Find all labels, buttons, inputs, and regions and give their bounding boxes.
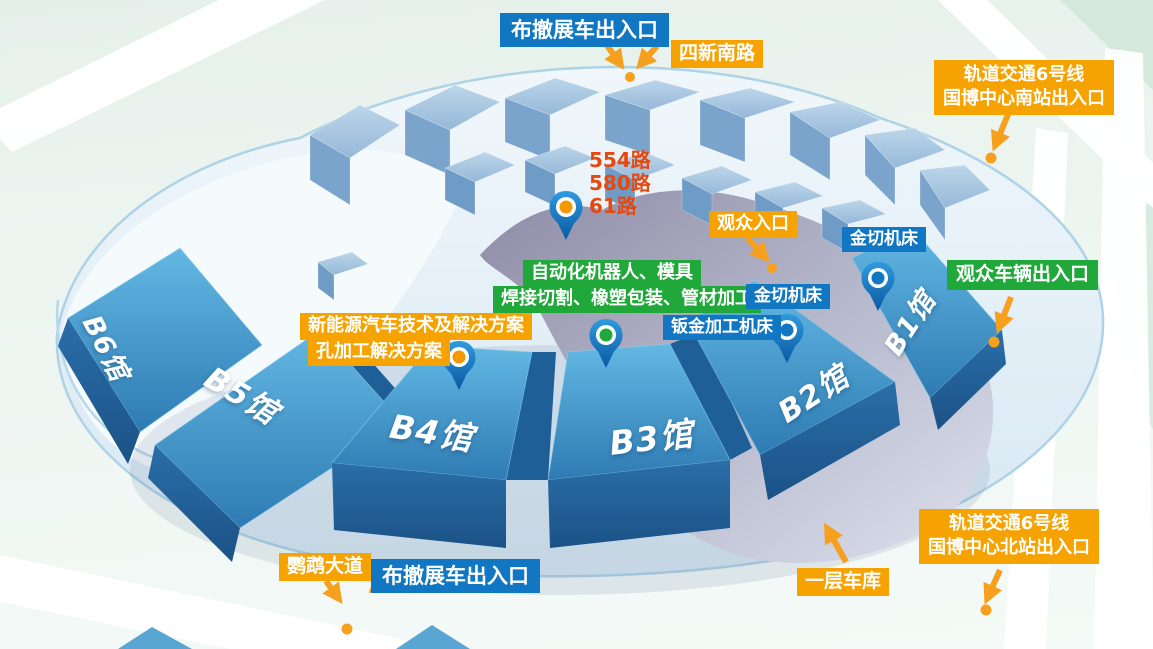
arrow-metro-south [995, 112, 1009, 146]
dot-truck-gate-top [625, 72, 635, 82]
label-visitor-vehicle-gate: 观众车辆出入口 [947, 260, 1098, 290]
arrow-metro-north [987, 570, 1000, 599]
label-metal-cutting-b1: 金切机床 [842, 227, 926, 252]
label-first-floor-garage: 一层车库 [797, 568, 889, 596]
bus-route: 580路 [589, 172, 651, 195]
bus-route: 61路 [589, 195, 651, 218]
arrow-visitor-vehicle-gate [999, 297, 1011, 328]
arrow-truck-gate-top-right [640, 46, 657, 65]
label-metal-cutting-b2: 金切机床 [746, 284, 830, 309]
pin-bus-stop [548, 190, 584, 242]
pin-hall-b1 [860, 261, 896, 313]
dot-metro-south [986, 153, 997, 164]
label-truck-gate-bottom: 布撤展车出入口 [371, 559, 540, 593]
label-metro-south-station: 轨道交通6号线 国博中心南站出入口 [934, 60, 1114, 115]
label-yingwu-avenue: 鹦鹉大道 [279, 553, 371, 581]
label-metro-north-station: 轨道交通6号线 国博中心北站出入口 [919, 509, 1099, 564]
label-automation-mold: 自动化机器人、模具 [523, 260, 701, 287]
arrow-yingwu-avenue [326, 581, 339, 599]
label-visitor-entrance: 观众入口 [709, 211, 797, 238]
dot-visitor-entrance [767, 263, 777, 273]
arrow-first-floor-garage [827, 528, 846, 562]
label-truck-gate-top: 布撤展车出入口 [500, 13, 669, 47]
arrow-visitor-entrance [747, 238, 766, 258]
label-welding-rubber-pipe: 焊接切割、橡塑包装、管材加工 [493, 286, 761, 313]
pin-hall-b3 [588, 318, 624, 370]
bus-stop-routes: 554路 580路 61路 [589, 149, 651, 218]
dot-metro-north [981, 605, 992, 616]
label-sheet-metal-machine: 钣金加工机床 [663, 315, 781, 340]
label-hole-processing: 孔加工解决方案 [308, 339, 450, 366]
expo-center-map: B1馆 B2馆 B3馆 B4馆 B5馆 B6馆 布撤展车出入口 四新南路 轨道交… [0, 0, 1153, 649]
dot-truck-gate-bottom [342, 624, 353, 635]
label-new-energy-auto: 新能源汽车技术及解决方案 [300, 313, 532, 340]
bus-route: 554路 [589, 149, 651, 172]
label-sixin-south-road: 四新南路 [671, 40, 763, 68]
dot-visitor-vehicle-gate [989, 337, 1000, 348]
hall-label-b3: B3馆 [606, 407, 695, 465]
